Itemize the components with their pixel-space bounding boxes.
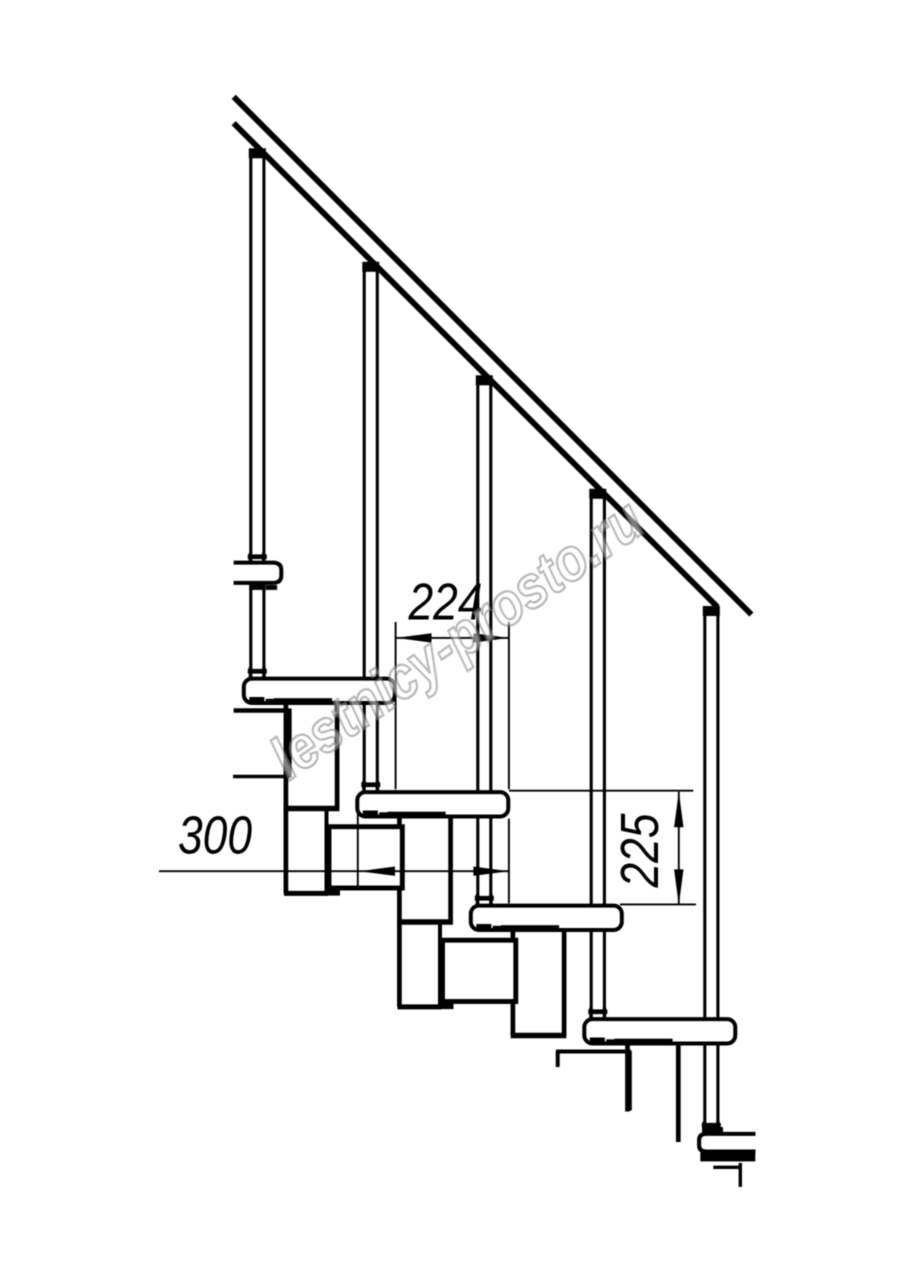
- svg-text:300: 300: [178, 806, 252, 866]
- svg-text:225: 225: [610, 813, 670, 889]
